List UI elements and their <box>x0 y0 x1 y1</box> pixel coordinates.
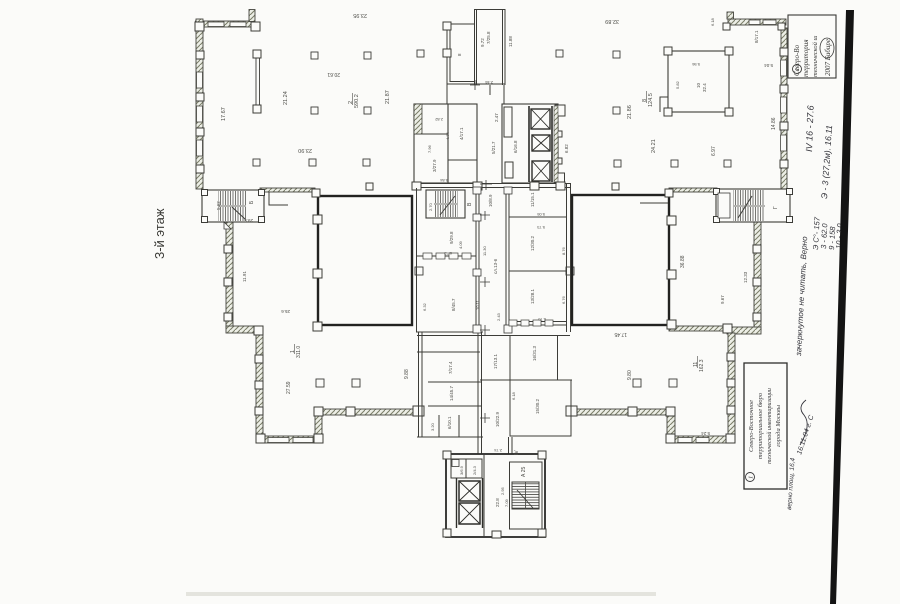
svg-text:25.6: 25.6 <box>281 309 290 314</box>
svg-text:21.24: 21.24 <box>283 91 289 105</box>
svg-text:7/25.8: 7/25.8 <box>486 31 491 44</box>
svg-text:5.04: 5.04 <box>764 63 773 68</box>
svg-text:32.89: 32.89 <box>605 18 619 24</box>
svg-text:124.5: 124.5 <box>648 93 654 107</box>
svg-text:IV 16 - 27.6: IV 16 - 27.6 <box>804 105 816 152</box>
svg-text:5.73: 5.73 <box>536 225 545 230</box>
svg-text:7.09: 7.09 <box>504 498 509 507</box>
svg-text:24.21: 24.21 <box>651 139 657 153</box>
svg-text:12.33: 12.33 <box>743 271 748 283</box>
svg-text:11.88: 11.88 <box>508 36 513 47</box>
svg-text:9.80: 9.80 <box>627 370 633 380</box>
svg-text:9.67: 9.67 <box>720 295 725 304</box>
svg-text:3-й этаж: 3-й этаж <box>152 208 167 259</box>
svg-text:8/17.1: 8/17.1 <box>754 30 759 43</box>
svg-text:5.24: 5.24 <box>701 431 710 436</box>
svg-text:6.18: 6.18 <box>710 17 715 26</box>
svg-text:Г: Г <box>773 206 779 209</box>
svg-text:1: 1 <box>794 68 801 71</box>
svg-text:Северо-Восточное: Северо-Восточное <box>748 400 755 452</box>
svg-text:2.47: 2.47 <box>494 113 499 122</box>
svg-text:13/28.1: 13/28.1 <box>530 288 535 304</box>
svg-text:4/17.1: 4/17.1 <box>459 127 464 140</box>
svg-text:А 25: А 25 <box>521 466 527 477</box>
svg-text:5.82: 5.82 <box>675 80 680 89</box>
svg-text:города Москвы: города Москвы <box>775 404 782 447</box>
svg-text:1: 1 <box>748 476 755 479</box>
svg-text:10/22.9: 10/22.9 <box>495 411 500 427</box>
svg-text:5/21.7: 5/21.7 <box>491 141 496 154</box>
svg-text:9.88: 9.88 <box>404 369 410 379</box>
svg-text:22.8: 22.8 <box>495 498 500 507</box>
svg-text:10.11: 10.11 <box>475 300 480 310</box>
svg-text:2.74: 2.74 <box>493 448 502 453</box>
svg-text:3/27.9: 3/27.9 <box>432 159 437 172</box>
svg-text:12/30.2: 12/30.2 <box>530 235 535 251</box>
svg-text:5.56: 5.56 <box>691 62 700 67</box>
svg-text:6/10.1: 6/10.1 <box>447 416 452 429</box>
svg-text:5.84: 5.84 <box>439 178 448 183</box>
svg-text:7/17.4: 7/17.4 <box>448 361 453 374</box>
svg-text:4.74: 4.74 <box>445 131 450 140</box>
svg-text:3.20: 3.20 <box>430 422 435 431</box>
svg-text:11.91: 11.91 <box>242 271 247 282</box>
svg-text:14.86: 14.86 <box>771 117 777 130</box>
svg-text:27.59: 27.59 <box>286 381 292 394</box>
svg-text:590.2: 590.2 <box>354 94 360 108</box>
svg-text:8.76: 8.76 <box>561 246 566 255</box>
svg-text:21.86: 21.86 <box>627 105 633 119</box>
svg-text:5.05: 5.05 <box>536 212 545 217</box>
svg-text:2.95: 2.95 <box>500 486 505 495</box>
svg-text:2.70: 2.70 <box>428 202 433 211</box>
svg-text:6.18: 6.18 <box>511 391 516 400</box>
svg-text:2.82: 2.82 <box>434 117 443 122</box>
svg-text:IV: IV <box>514 450 520 455</box>
svg-text:технической инвентаризации: технической инвентаризации <box>766 388 773 464</box>
svg-text:23.90: 23.90 <box>298 147 312 153</box>
svg-text:162.3: 162.3 <box>699 359 705 372</box>
svg-text:8/45.7: 8/45.7 <box>451 298 456 311</box>
svg-text:20.61: 20.61 <box>327 71 340 77</box>
svg-text:11.30: 11.30 <box>482 246 487 256</box>
svg-text:территория: территория <box>802 40 810 77</box>
svg-text:11/15.1: 11/15.1 <box>530 192 535 207</box>
svg-text:5.62: 5.62 <box>216 201 221 210</box>
svg-text:4.09: 4.09 <box>458 240 463 249</box>
svg-text:29.5: 29.5 <box>244 218 253 223</box>
svg-text:15/30.2: 15/30.2 <box>535 398 540 414</box>
svg-text:9/29.8: 9/29.8 <box>449 231 454 244</box>
svg-text:3/6.9: 3/6.9 <box>459 465 464 475</box>
svg-text:9.72: 9.72 <box>480 38 485 47</box>
svg-text:23.95: 23.95 <box>353 12 367 18</box>
svg-text:14/45.7: 14/45.7 <box>449 385 454 401</box>
svg-text:17.45: 17.45 <box>614 331 627 337</box>
svg-text:2.43: 2.43 <box>496 312 501 321</box>
svg-text:6.70: 6.70 <box>537 317 546 322</box>
svg-text:17/13.1: 17/13.1 <box>493 353 498 369</box>
svg-text:17.67: 17.67 <box>221 107 227 121</box>
svg-text:6.32: 6.32 <box>443 251 452 256</box>
svg-text:6.82: 6.82 <box>564 144 569 153</box>
svg-text:10: 10 <box>696 82 701 88</box>
svg-text:6.32: 6.32 <box>422 302 427 311</box>
svg-text:36.88: 36.88 <box>680 255 686 268</box>
svg-text:21.87: 21.87 <box>385 90 391 104</box>
svg-text:10/8.9: 10/8.9 <box>488 194 493 207</box>
svg-text:2/4.3: 2/4.3 <box>472 465 477 475</box>
svg-text:6.97: 6.97 <box>711 146 717 156</box>
svg-text:7.96: 7.96 <box>427 144 432 153</box>
svg-text:32.4: 32.4 <box>702 83 707 92</box>
svg-text:311.0: 311.0 <box>296 346 302 358</box>
svg-text:2.46: 2.46 <box>484 80 493 85</box>
svg-text:6/16.8: 6/16.8 <box>513 140 518 153</box>
svg-text:6.76: 6.76 <box>561 295 566 304</box>
svg-text:16/31.3: 16/31.3 <box>532 345 537 361</box>
svg-text:сл.13-6: сл.13-6 <box>493 258 498 274</box>
svg-text:территориальное бюро: территориальное бюро <box>757 392 764 459</box>
svg-text:технической ш: технической ш <box>812 35 819 77</box>
